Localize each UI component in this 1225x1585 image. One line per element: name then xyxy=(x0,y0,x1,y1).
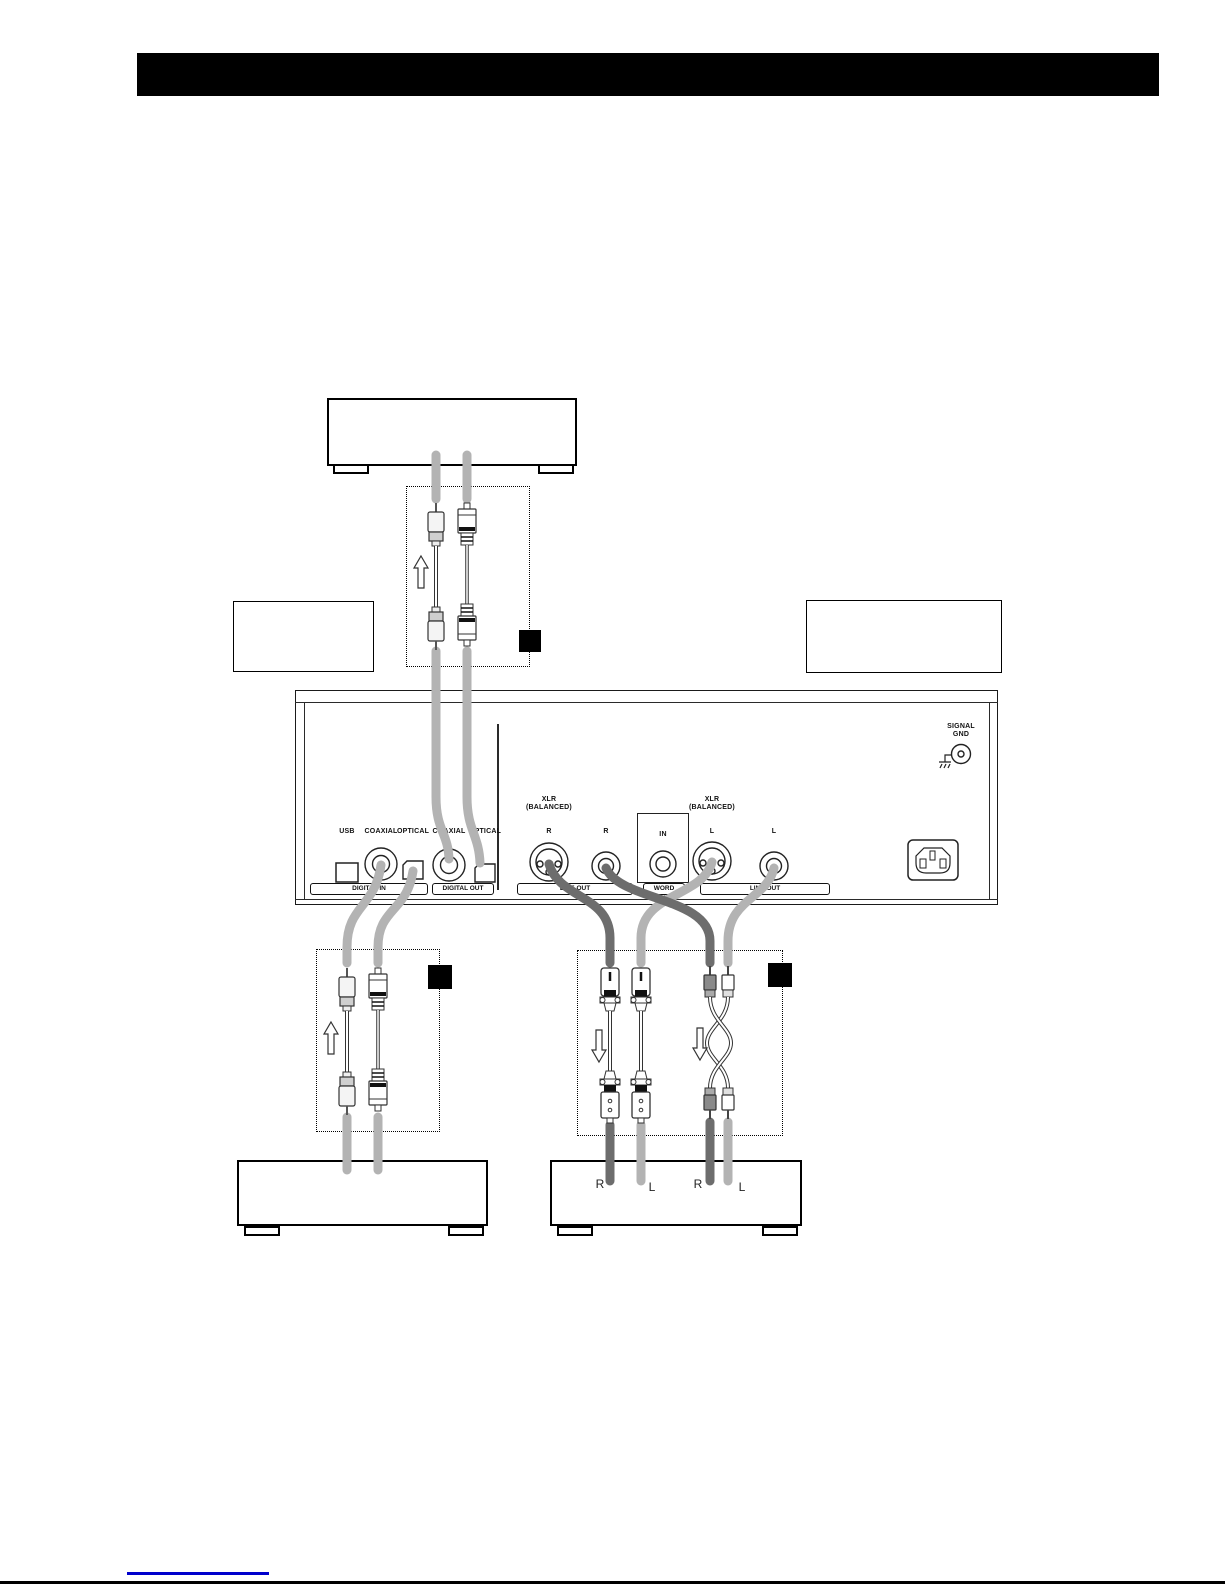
signal-gnd-label: SIGNAL GND xyxy=(936,723,986,739)
page-bottom-rule xyxy=(0,1581,1225,1584)
bottom-right-device-foot-right xyxy=(762,1226,798,1236)
line-out-l-bar: LINE OUT xyxy=(700,883,830,895)
bottom-left-device-foot-right xyxy=(448,1226,484,1236)
rear-panel-inner-right-line xyxy=(989,702,990,900)
xlr-r-label-line2: (BALANCED) xyxy=(519,804,579,812)
xlr-r-channel-label: R xyxy=(539,828,559,836)
cable-label-xlr-l: L xyxy=(640,1180,664,1194)
manual-page: USB COAXIAL OPTICAL COAXIAL OPTICAL XLR … xyxy=(0,0,1225,1585)
top-device-foot-left xyxy=(333,464,369,474)
bottom-left-device-box xyxy=(237,1160,488,1226)
digital-in-optical-label: OPTICAL xyxy=(393,828,433,836)
digital-out-coaxial-label: COAXIAL xyxy=(429,828,469,836)
line-out-cable-kit-box xyxy=(577,950,783,1136)
word-sync-in-label: IN xyxy=(653,831,673,839)
callout-box-left xyxy=(233,601,374,672)
word-sync-bar: WORD SYNC xyxy=(643,883,685,895)
step-marker-digital-out xyxy=(519,630,541,652)
xlr-r-label-line1: XLR xyxy=(519,796,579,804)
footer-link-underline[interactable] xyxy=(127,1572,269,1575)
cable-label-xlr-r: R xyxy=(588,1177,612,1191)
digital-in-cable-kit-box xyxy=(316,949,440,1132)
rca-l-channel-label: L xyxy=(764,828,784,836)
cable-label-rca-l: L xyxy=(730,1180,754,1194)
rear-panel-section-divider xyxy=(497,724,499,890)
rear-panel-inner-left-line xyxy=(304,702,305,900)
rear-panel-inner-bottom-line xyxy=(295,899,998,900)
step-marker-digital-in xyxy=(428,965,452,989)
step-marker-line-out xyxy=(768,963,792,987)
word-sync-box xyxy=(637,813,689,883)
digital-in-bar: DIGITAL IN xyxy=(310,883,428,895)
signal-gnd-label-line2: GND xyxy=(936,731,986,739)
bottom-right-device-foot-left xyxy=(557,1226,593,1236)
xlr-l-channel-label: L xyxy=(702,828,722,836)
callout-box-right xyxy=(806,600,1002,673)
digital-out-optical-label: OPTICAL xyxy=(465,828,505,836)
rear-panel-inner-top-line xyxy=(295,702,998,703)
bottom-left-device-foot-left xyxy=(244,1226,280,1236)
bottom-right-device-box xyxy=(550,1160,802,1226)
cable-label-rca-r: R xyxy=(686,1177,710,1191)
line-out-r-bar: LINE OUT xyxy=(517,883,633,895)
digital-out-cable-kit-box xyxy=(406,486,530,667)
xlr-l-label: XLR (BALANCED) xyxy=(682,796,742,812)
digital-out-bar: DIGITAL OUT xyxy=(432,883,494,895)
xlr-r-label: XLR (BALANCED) xyxy=(519,796,579,812)
top-device-box xyxy=(327,398,577,466)
xlr-l-label-line2: (BALANCED) xyxy=(682,804,742,812)
signal-gnd-label-line1: SIGNAL xyxy=(936,723,986,731)
page-header-bar xyxy=(137,53,1159,96)
xlr-l-label-line1: XLR xyxy=(682,796,742,804)
rca-r-channel-label: R xyxy=(596,828,616,836)
top-device-foot-right xyxy=(538,464,574,474)
